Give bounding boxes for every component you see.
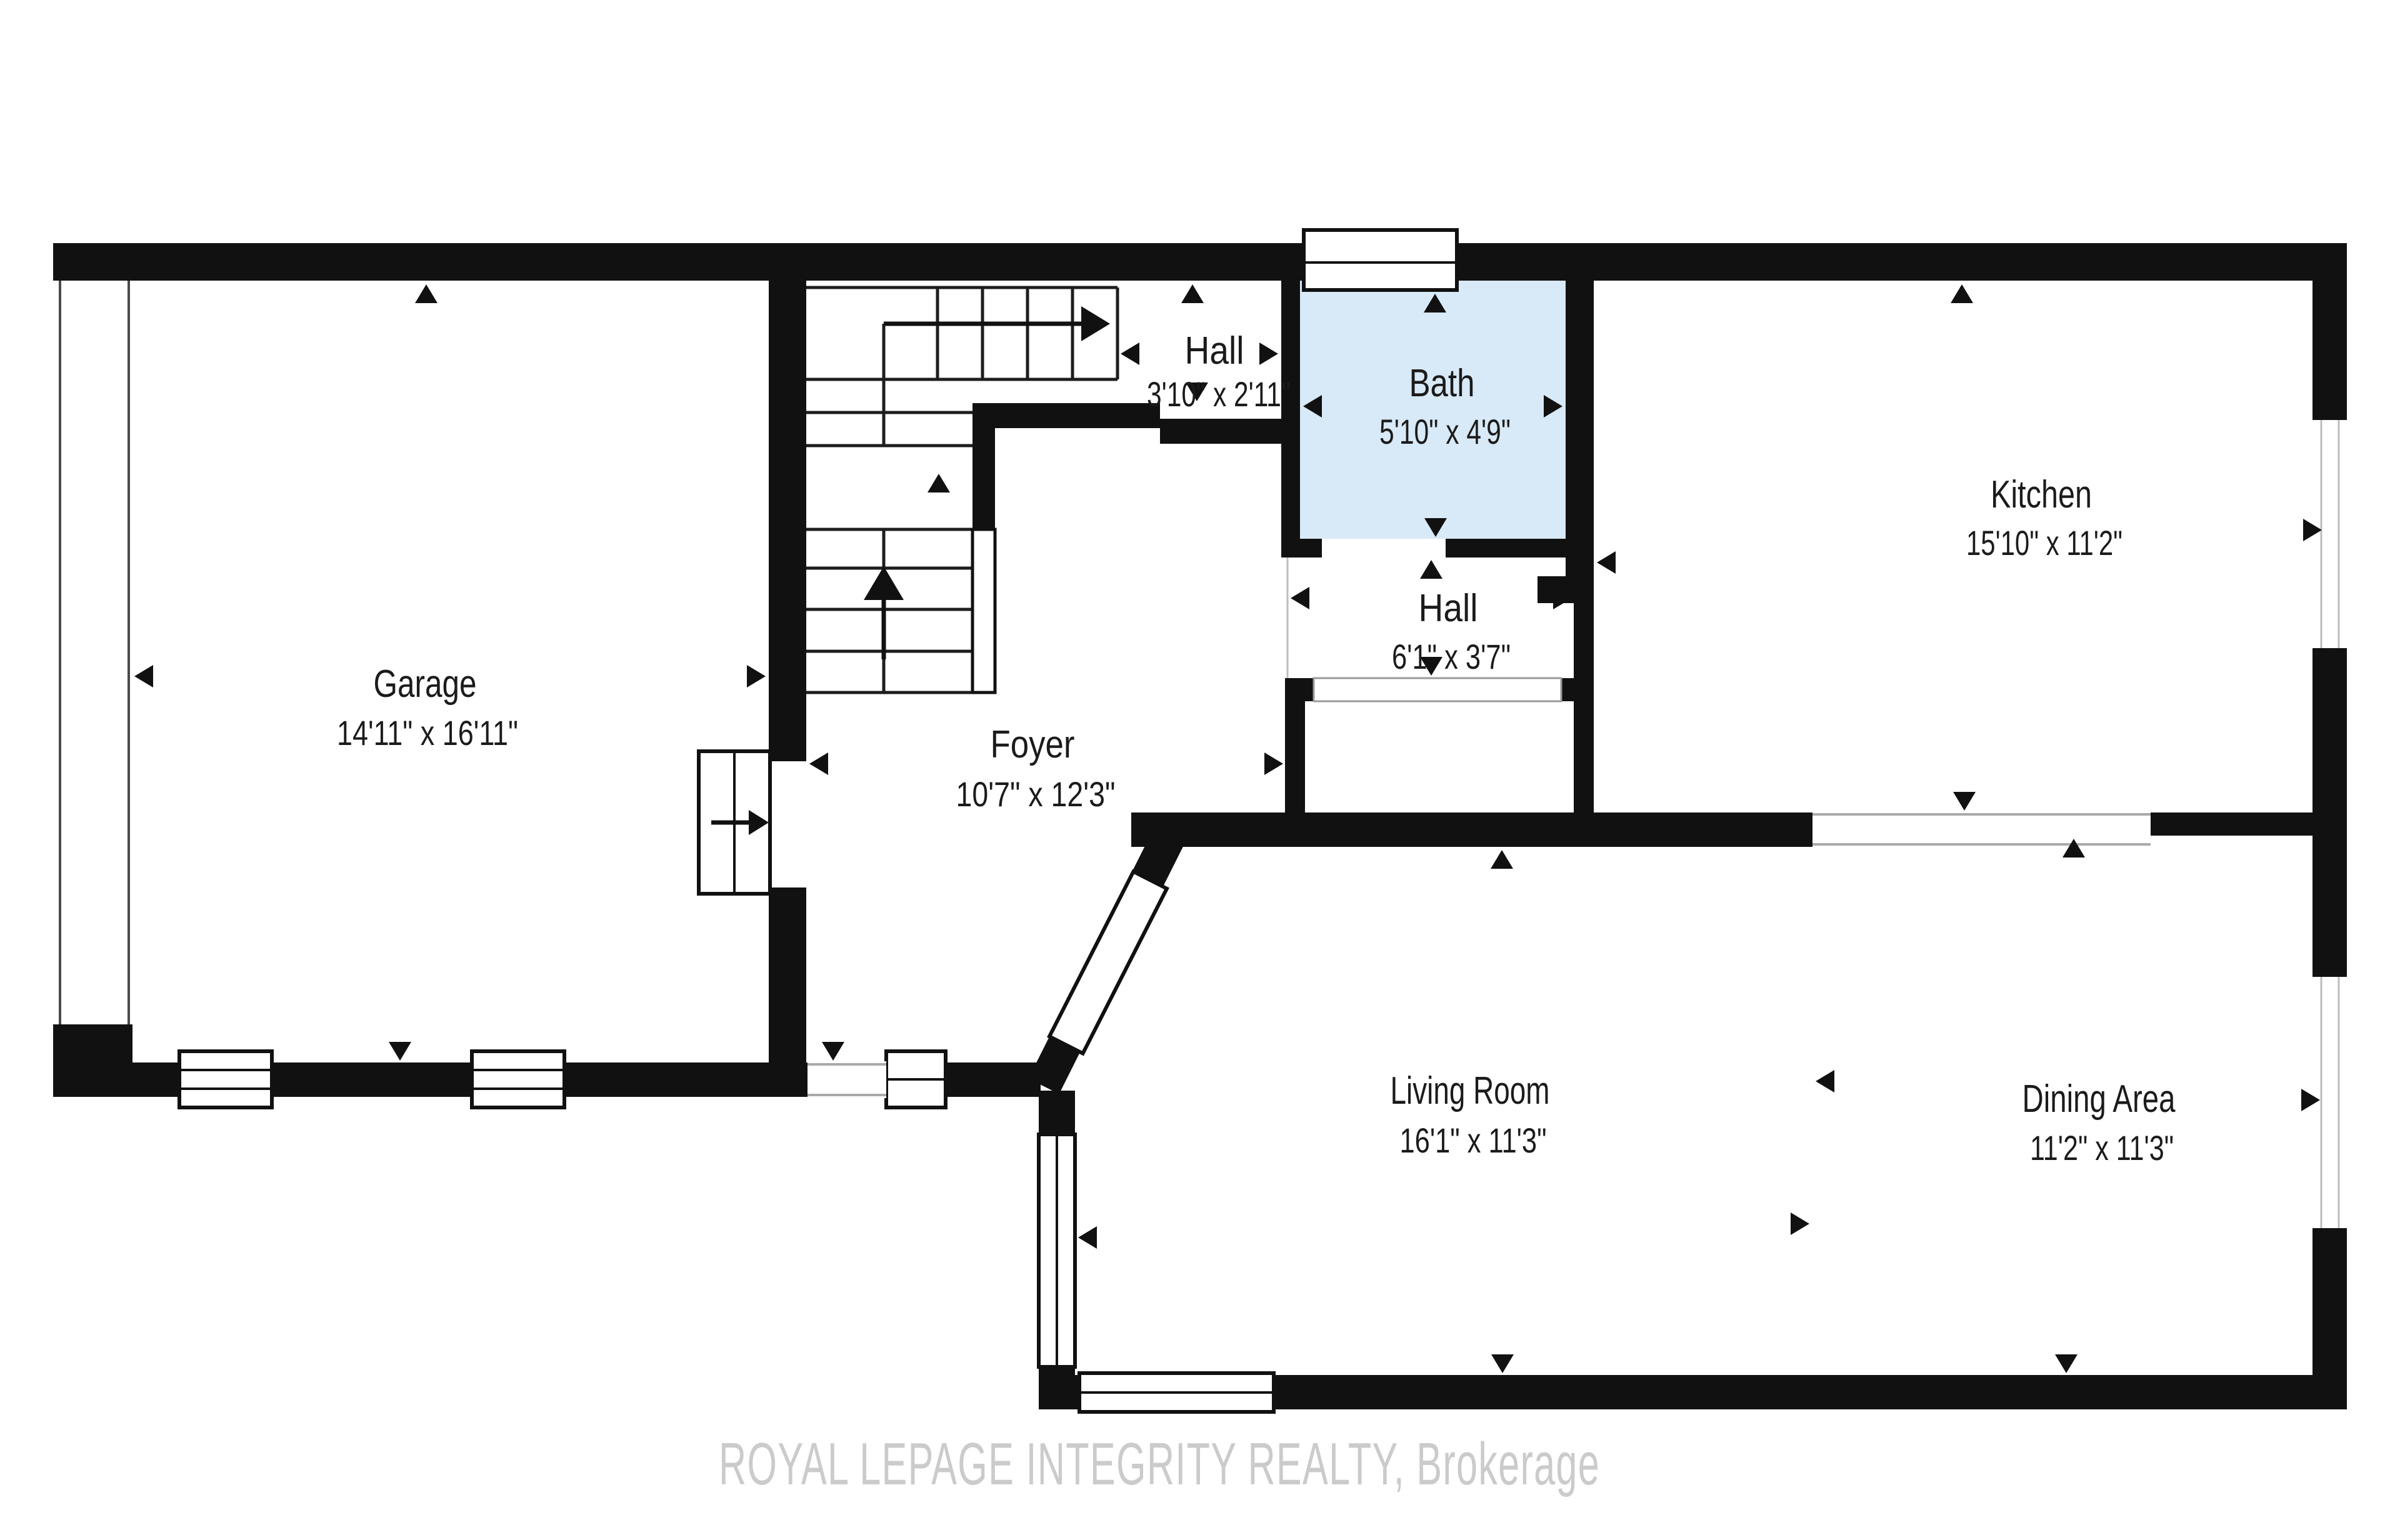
hall-lower-dim-arrow-up [1420,560,1442,579]
wall-top [53,243,2347,281]
kitchen-dimensions: 15'10" x 11'2" [1966,523,2122,562]
wall-living-left-upper [1039,1091,1075,1134]
foyer-dimensions: 10'7" x 12'3" [956,774,1116,814]
bath-floor-fill [1300,281,1566,539]
hall-lower-label: Hall [1419,587,1478,630]
floor-plan-page: Garage 14'11" x 16'11" Foyer 10'7" x 12'… [0,0,2400,1540]
foyer-dim-arrow-right [1264,752,1283,775]
wall-kitchen-dining-divider [2151,812,2312,836]
wall-stair-hall [972,403,1160,428]
garage-dim-arrow-up [415,284,437,303]
foyer-label: Foyer [991,723,1075,766]
hall-upper-dim-arrow-up [1181,284,1204,303]
wall-stair-side [972,428,995,529]
dining-dim-arrow-down [2055,1354,2077,1373]
stair-knee-wall [972,529,995,692]
room-labels: Garage 14'11" x 16'11" Foyer 10'7" x 12'… [337,329,2176,1167]
wall-bath-right [1566,281,1594,603]
wall-right-upper [2312,281,2347,420]
garage-dim-arrow-left [134,665,153,687]
stair-arrow-right-icon [1081,306,1110,341]
bath-dimensions: 5'10" x 4'9" [1379,412,1511,451]
wall-living-left-lower [1039,1367,1075,1409]
hall-upper-dimensions: 3'10" x 2'11" [1147,374,1291,414]
wall-garage-left-corner [53,1024,132,1062]
hall-upper-dim-arrow-right [1259,342,1278,365]
garage-dimensions: 14'11" x 16'11" [337,713,518,752]
wall-bath-left [1281,281,1300,557]
kitchen-dim-arrow-down [1953,792,1976,811]
living-dim-arrow-left [1078,1226,1097,1249]
wall-garage-right-lower [769,887,806,1062]
kitchen-dim-arrow-right [2303,519,2322,541]
garage-dim-arrow-right [747,665,766,687]
dining-dim-arrow-right [2301,1089,2320,1111]
kitchen-dim-arrow-left [1597,551,1616,574]
floor-plan-canvas: Garage 14'11" x 16'11" Foyer 10'7" x 12'… [0,0,2400,1540]
wall-closet-right [1574,600,1594,812]
living-dim-arrow-right [1791,1212,1809,1235]
bath-label: Bath [1409,362,1475,405]
garage-window-2 [472,1051,564,1107]
living-room-label: Living Room [1391,1069,1550,1112]
hall-upper-dim-arrow-left [1121,342,1139,365]
front-door [1049,872,1167,1054]
garage-door-assembly [699,751,770,894]
closet-sliding-door [1314,678,1561,701]
kitchen-label: Kitchen [1991,473,2092,516]
garage-label: Garage [374,662,477,706]
brokerage-watermark: ROYAL LEPAGE INTEGRITY REALTY, Brokerage [719,1431,1600,1497]
hall-lower-dimensions: 6'1" x 3'7" [1392,637,1511,676]
hall-upper-label: Hall [1185,329,1244,372]
dining-dim-arrow-up [2062,839,2085,857]
garage-window-1 [179,1051,272,1107]
foyer-dim-arrow-left [809,752,828,775]
staircase [806,287,1117,692]
wall-bath-bottom-left [1281,539,1322,557]
garage-dim-arrow-down [389,1042,411,1061]
foyer-porch-opening [807,1061,886,1098]
wall-closet-left [1285,701,1305,812]
dining-area-dimensions: 11'2" x 11'3" [2030,1128,2174,1167]
living-dim-arrow-down [1491,1354,1514,1373]
wall-hall-foyer [1160,419,1287,444]
living-dim-arrow-up [1491,850,1513,869]
kitchen-dim-arrow-up [1951,284,1973,303]
bath-window [1304,230,1457,290]
foyer-dim-arrow-down [822,1042,844,1061]
wall-living-top [1131,812,1812,847]
hall-lower-dim-arrow-left [1291,587,1309,609]
wall-right-middle [2312,648,2347,977]
living-room-dimensions: 16'1" x 11'3" [1400,1121,1547,1160]
wall-closet-left-corner [1285,678,1314,701]
stair-arrow-up-icon [864,566,904,600]
front-door-leaf [1049,872,1167,1054]
walls [53,243,2347,1409]
dining-dim-arrow-left [1816,1070,1834,1092]
wall-garage-right-upper [769,281,806,761]
foyer-dim-arrow-up [927,474,950,492]
dining-area-label: Dining Area [2022,1077,2176,1121]
